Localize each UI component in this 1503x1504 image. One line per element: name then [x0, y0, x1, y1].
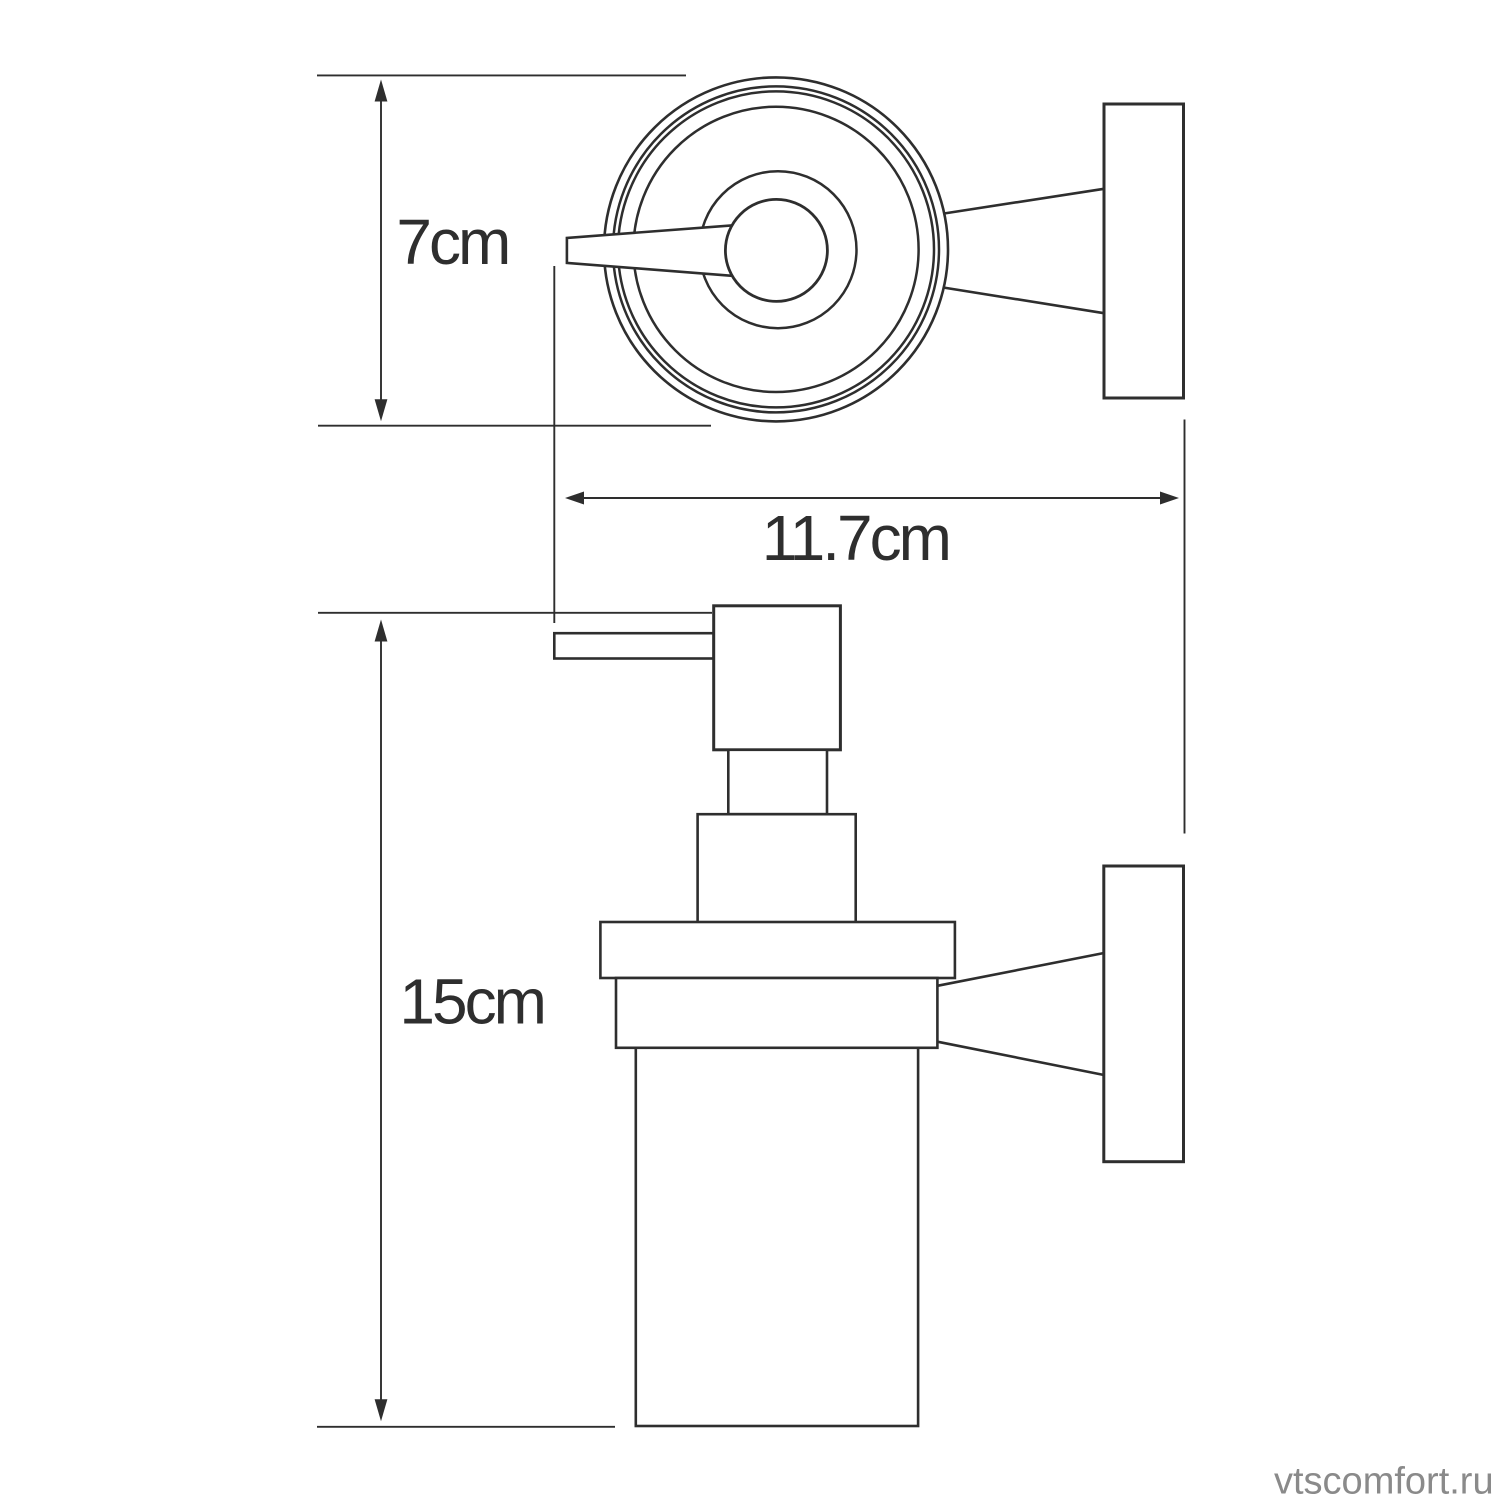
- svg-text:7cm: 7cm: [396, 206, 508, 278]
- svg-text:11.7cm: 11.7cm: [762, 502, 949, 574]
- svg-text:15cm: 15cm: [399, 966, 544, 1038]
- svg-text:vtscomfort.ru: vtscomfort.ru: [1274, 1461, 1494, 1503]
